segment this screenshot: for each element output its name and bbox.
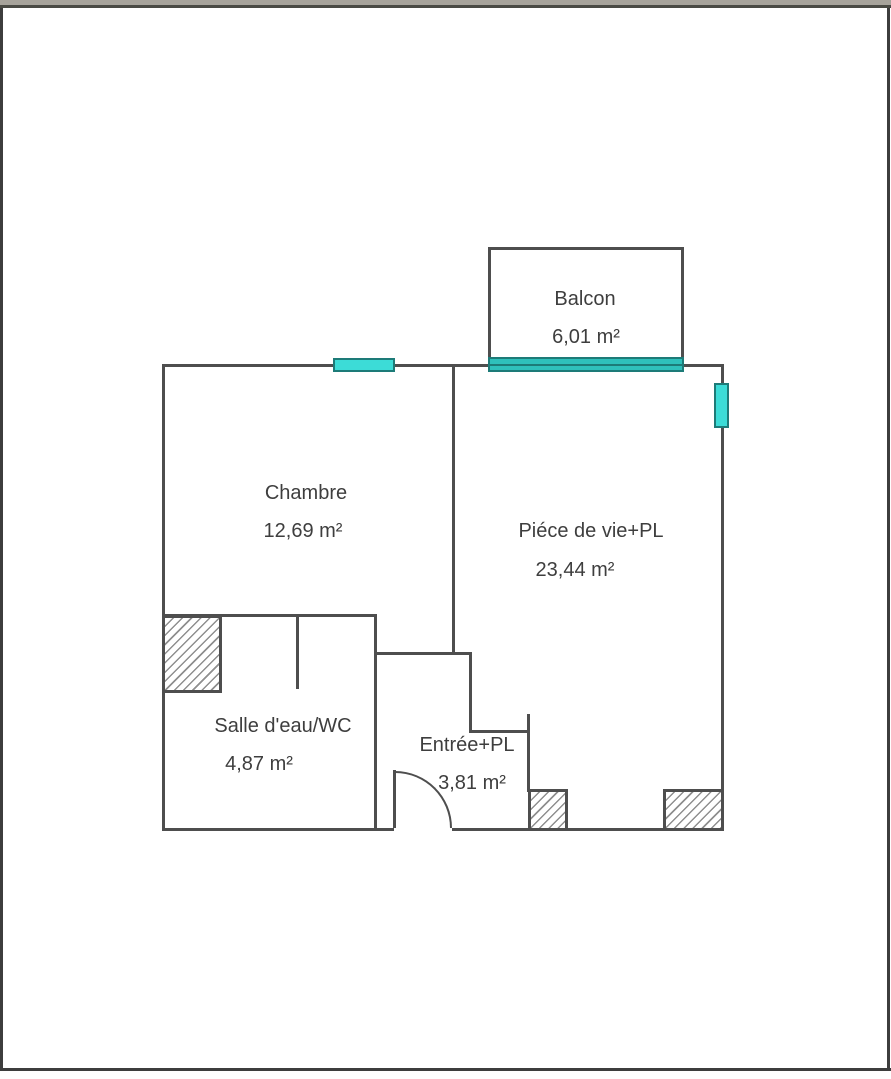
balcony-sliding-door: [488, 357, 684, 372]
balcon-area: 6,01 m²: [552, 327, 620, 347]
floor-plan: Balcon 6,01 m² Chambre 12,69 m² Piéce de…: [0, 0, 891, 1079]
wall-balcony-right: [681, 247, 684, 361]
chambre-label: Chambre: [265, 483, 347, 503]
piece-de-vie-label: Piéce de vie+PL: [518, 521, 663, 541]
hatch-block-salle-eau: [162, 615, 222, 693]
hatch-block-entree: [528, 789, 568, 831]
wall-outer-left: [162, 364, 165, 831]
salle-eau-wc-label: Salle d'eau/WC: [214, 716, 351, 736]
chambre-window: [333, 358, 395, 372]
wall-balcony-left: [488, 247, 491, 361]
wall-balcony-top: [488, 247, 684, 250]
screenshot-root: Balcon 6,01 m² Chambre 12,69 m² Piéce de…: [0, 0, 891, 1079]
wall-outer-right: [721, 364, 724, 831]
wall-entree-step-horizontal: [469, 730, 530, 733]
wall-entree-top: [374, 652, 472, 655]
wall-chambre-pdv-divider: [452, 364, 455, 655]
balcon-label: Balcon: [554, 289, 615, 309]
pdv-window: [714, 383, 729, 428]
wall-salle-eau-right: [374, 614, 377, 831]
wall-pdv-stub: [527, 714, 530, 792]
salle-eau-wc-area: 4,87 m²: [225, 754, 293, 774]
wall-outer-bottom-left: [162, 828, 394, 831]
piece-de-vie-area: 23,44 m²: [536, 560, 615, 580]
chambre-area: 12,69 m²: [264, 521, 343, 541]
wall-entree-step-vertical: [469, 652, 472, 733]
wall-salle-eau-partition: [296, 614, 299, 689]
entree-label: Entrée+PL: [419, 735, 514, 755]
entree-area: 3,81 m²: [438, 773, 506, 793]
hatch-block-bottom-right: [663, 789, 724, 831]
